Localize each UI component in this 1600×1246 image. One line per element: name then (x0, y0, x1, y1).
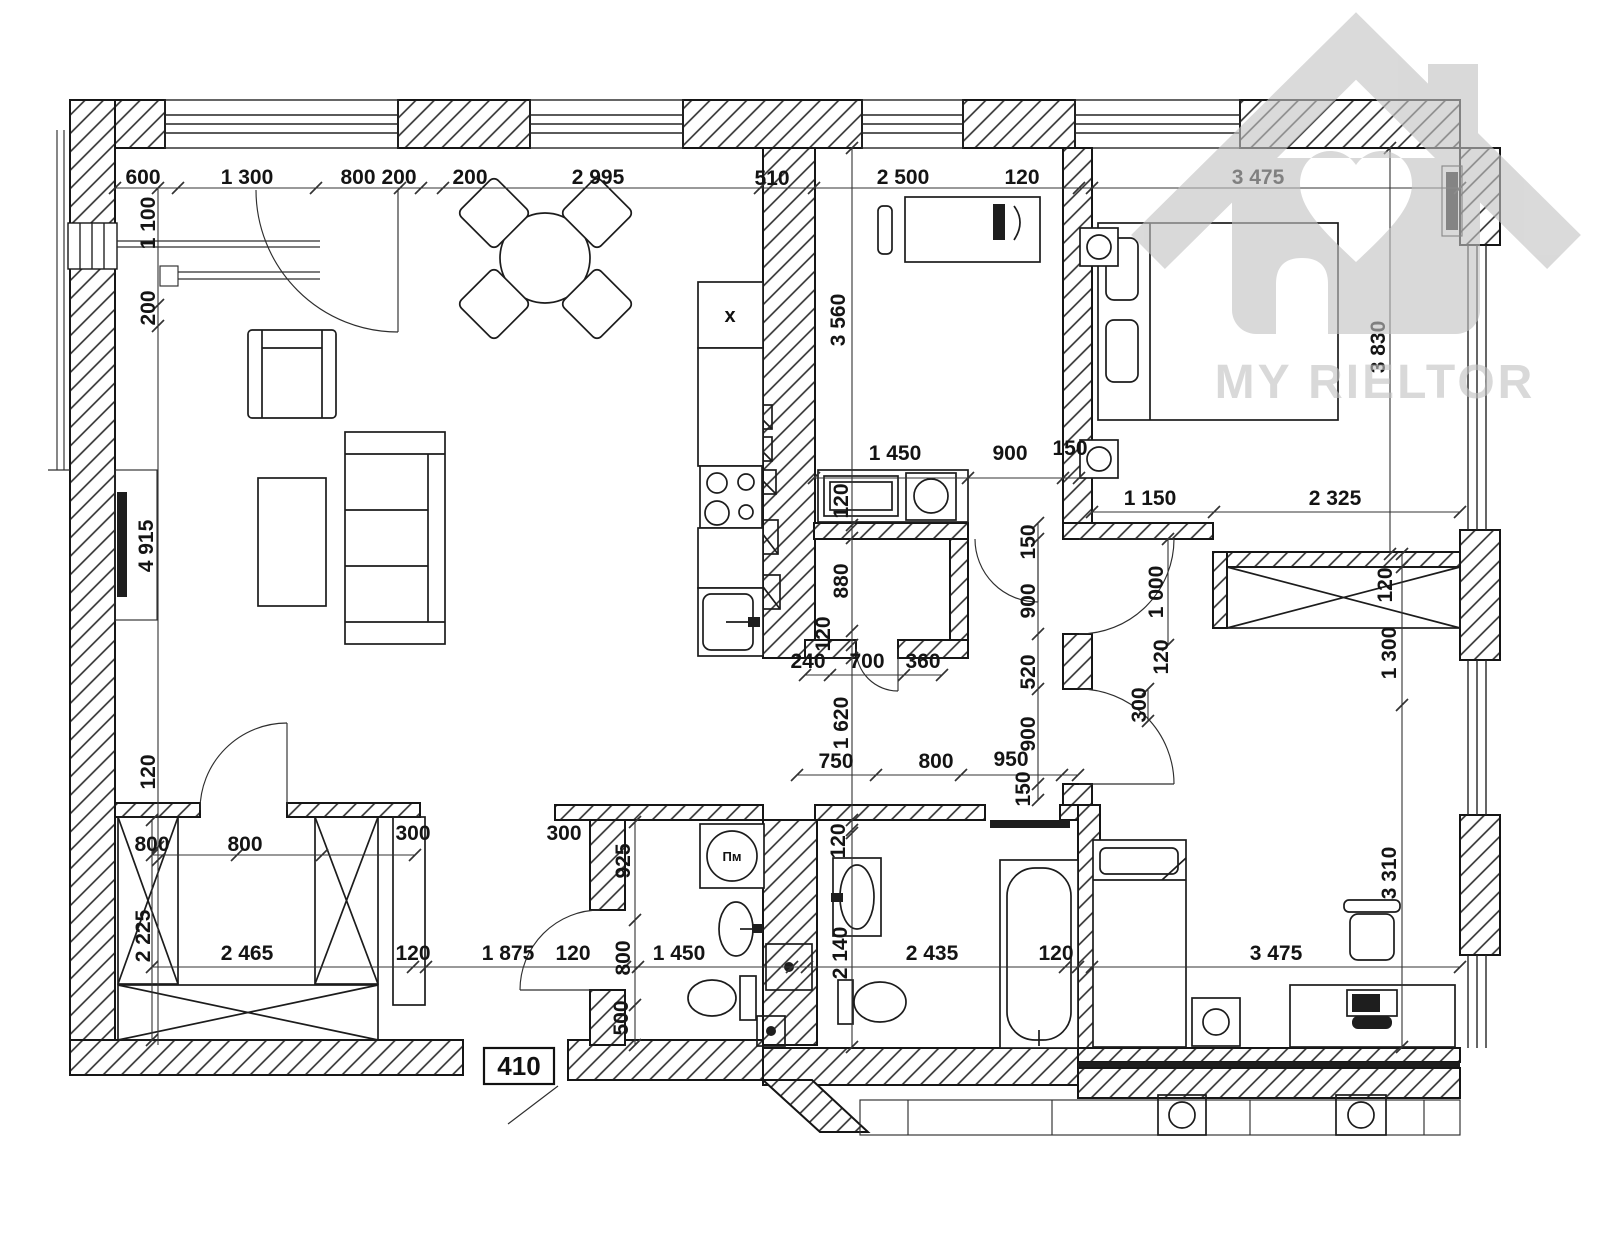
dimension-label: 120 (812, 616, 835, 651)
top-window-1 (165, 100, 398, 148)
desk-chair-2 (1344, 900, 1400, 960)
dimension-label: 150 (1017, 524, 1040, 559)
balcony-column-2 (1336, 1095, 1386, 1135)
office-chair (878, 206, 892, 254)
desk-2 (1290, 985, 1455, 1047)
dimension-label: 120 (555, 942, 590, 965)
dimension-label: 2 500 (877, 166, 930, 189)
dimension-label: 3 560 (827, 294, 850, 347)
bedroom2-furniture (1093, 552, 1460, 1047)
dimension-label: 1 000 (1145, 566, 1168, 619)
dimension-label: 500 (610, 1000, 633, 1035)
watermark-text: MY RIELTOR (1215, 356, 1536, 409)
dimension-label: 4 915 (135, 519, 158, 572)
left-balcony-rail (48, 130, 70, 470)
dimension-label: 2 995 (572, 166, 625, 189)
nightstand-1a (1080, 228, 1118, 266)
dimension-label: 300 (395, 822, 430, 845)
closet-wardrobe-right (315, 817, 378, 984)
closet-door (200, 723, 287, 810)
dimension-label: 900 (992, 442, 1027, 465)
dimension-label: 120 (137, 754, 160, 789)
top-window-3 (862, 100, 963, 148)
kitchen-block: x (698, 282, 763, 656)
dimension-label: 1 100 (137, 197, 160, 250)
dimension-label: 700 (849, 650, 884, 673)
dimension-label: 520 (1017, 654, 1040, 689)
kitchen-sink (698, 588, 763, 656)
dimension-label: 900 (1017, 583, 1040, 618)
dimension-label: 800 (134, 833, 169, 856)
top-window-4 (1075, 100, 1240, 148)
dimension-label: 360 (905, 650, 940, 673)
closet-wardrobe-bottom (118, 985, 378, 1040)
closet-pilaster (393, 817, 425, 1005)
bedroom2-door (1079, 689, 1174, 784)
dimension-label: 600 (125, 166, 160, 189)
dimension-label: 120 (1004, 166, 1039, 189)
dimension-label: 120 (827, 823, 850, 858)
living-room-furniture (115, 330, 445, 644)
dimension-label: 800 (918, 750, 953, 773)
dimension-label: 880 (830, 563, 853, 598)
apartment-number: 410 (497, 1051, 540, 1081)
dimension-label: 800 (340, 166, 375, 189)
logo-house-body (1232, 151, 1480, 334)
washing-machine: Пм (700, 824, 764, 888)
dimension-label: 1 450 (653, 942, 706, 965)
dimension-label: 1 620 (830, 697, 853, 750)
top-window-2 (530, 100, 683, 148)
balcony-column-1 (1158, 1095, 1206, 1135)
wc-top-wall (555, 805, 763, 820)
dimension-label: 240 (790, 650, 825, 673)
dimension-label: 1 150 (1124, 487, 1177, 510)
dimension-label: 300 (1128, 687, 1151, 722)
cabinet-x-mark: x (724, 305, 735, 327)
dimension-label: 2 435 (906, 942, 959, 965)
bed-2 (1093, 840, 1186, 1047)
dimension-label: 1 300 (1378, 627, 1401, 680)
dimension-label: 120 (1038, 942, 1073, 965)
dimension-label: 120 (1374, 567, 1397, 602)
dimension-label: 925 (612, 843, 635, 878)
washing-machine-label: Пм (723, 849, 742, 864)
floor-plan-page: x Пм (0, 0, 1600, 1246)
dining-set (457, 176, 634, 341)
balcony-door (256, 190, 398, 332)
dimension-label: 800 (227, 833, 262, 856)
dimension-label: 200 (381, 166, 416, 189)
south-balcony (860, 1095, 1460, 1135)
dimension-label: 200 (452, 166, 487, 189)
dimension-label: 1 875 (482, 942, 535, 965)
dimension-label: 1 300 (221, 166, 274, 189)
dimension-label: 2 225 (132, 909, 155, 962)
dimension-label: 120 (1150, 639, 1173, 674)
apartment-number-box: 410 (484, 1048, 554, 1084)
nightstand-2 (1192, 998, 1240, 1046)
dimension-label: 2 325 (1309, 487, 1362, 510)
office-furniture (818, 197, 1040, 522)
dimension-label: 3 475 (1250, 942, 1303, 965)
dimension-label: 120 (395, 942, 430, 965)
dimension-label: 120 (830, 483, 853, 518)
dimension-label: 2 465 (221, 942, 274, 965)
wc-bath-wall (763, 820, 817, 1045)
sofa (345, 432, 445, 644)
dimension-label: 750 (818, 750, 853, 773)
dimension-label: 200 (137, 290, 160, 325)
dimension-label: 300 (546, 822, 581, 845)
kitchen-wall (763, 148, 815, 658)
bath-sink (831, 858, 881, 936)
coffee-table (258, 478, 326, 606)
dimension-label: 2 140 (829, 927, 852, 980)
armchair (248, 330, 336, 418)
dimension-label: 900 (1017, 716, 1040, 751)
wardrobe-built-in (1213, 552, 1460, 628)
left-window (68, 223, 117, 269)
dimension-label: 3 310 (1378, 847, 1401, 900)
dimension-label: 510 (754, 167, 789, 190)
wc-sink (719, 902, 763, 956)
bath-toilet (838, 980, 906, 1024)
dimension-label: 1 450 (869, 442, 922, 465)
dimension-label: 150 (1052, 437, 1087, 460)
entrance-leader-line (508, 1086, 558, 1124)
stove (700, 466, 762, 528)
dimension-label: 800 (612, 940, 635, 975)
wc-toilet (688, 976, 756, 1020)
dimension-label: 150 (1012, 771, 1035, 806)
floor-plan-drawing: x Пм (0, 0, 1600, 1246)
bedroom1-bottom-wall (1063, 523, 1213, 539)
